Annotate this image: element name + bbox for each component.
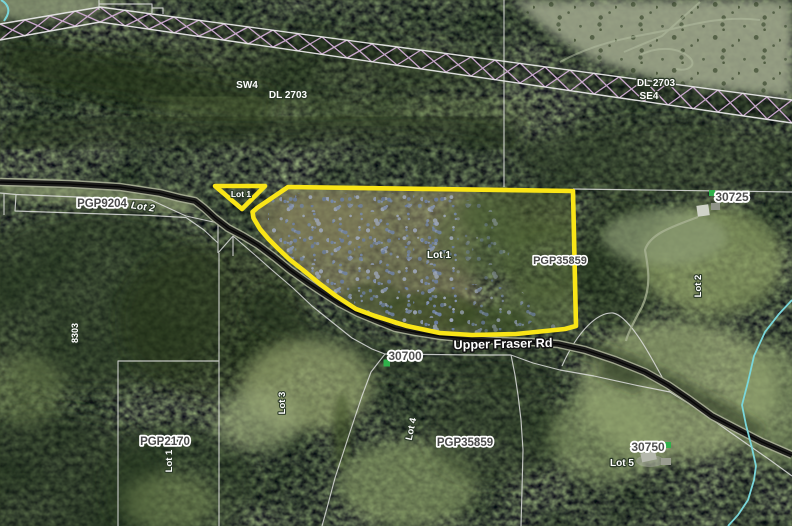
svg-text:PGP9204: PGP9204	[77, 198, 127, 210]
svg-text:8303: 8303	[70, 323, 80, 343]
svg-text:Lot 2: Lot 2	[693, 275, 704, 298]
svg-text:PGP2170: PGP2170	[140, 436, 190, 448]
svg-text:DL 2703: DL 2703	[637, 78, 676, 89]
svg-text:30750: 30750	[631, 440, 665, 454]
svg-text:DL 2703: DL 2703	[269, 90, 308, 101]
svg-text:PGP35859: PGP35859	[533, 255, 587, 267]
svg-text:SE4: SE4	[640, 91, 659, 102]
svg-text:30725: 30725	[715, 190, 749, 204]
svg-text:30700: 30700	[388, 349, 422, 363]
svg-text:Lot 1: Lot 1	[231, 189, 252, 199]
svg-text:Lot 1: Lot 1	[164, 449, 175, 472]
svg-text:Lot 1: Lot 1	[427, 250, 451, 261]
svg-text:Lot 3: Lot 3	[277, 392, 288, 415]
svg-text:Lot 5: Lot 5	[610, 458, 634, 469]
svg-text:PGP35859: PGP35859	[437, 437, 493, 449]
svg-text:Upper Fraser Rd: Upper Fraser Rd	[453, 336, 552, 352]
svg-text:SW4: SW4	[236, 80, 258, 91]
